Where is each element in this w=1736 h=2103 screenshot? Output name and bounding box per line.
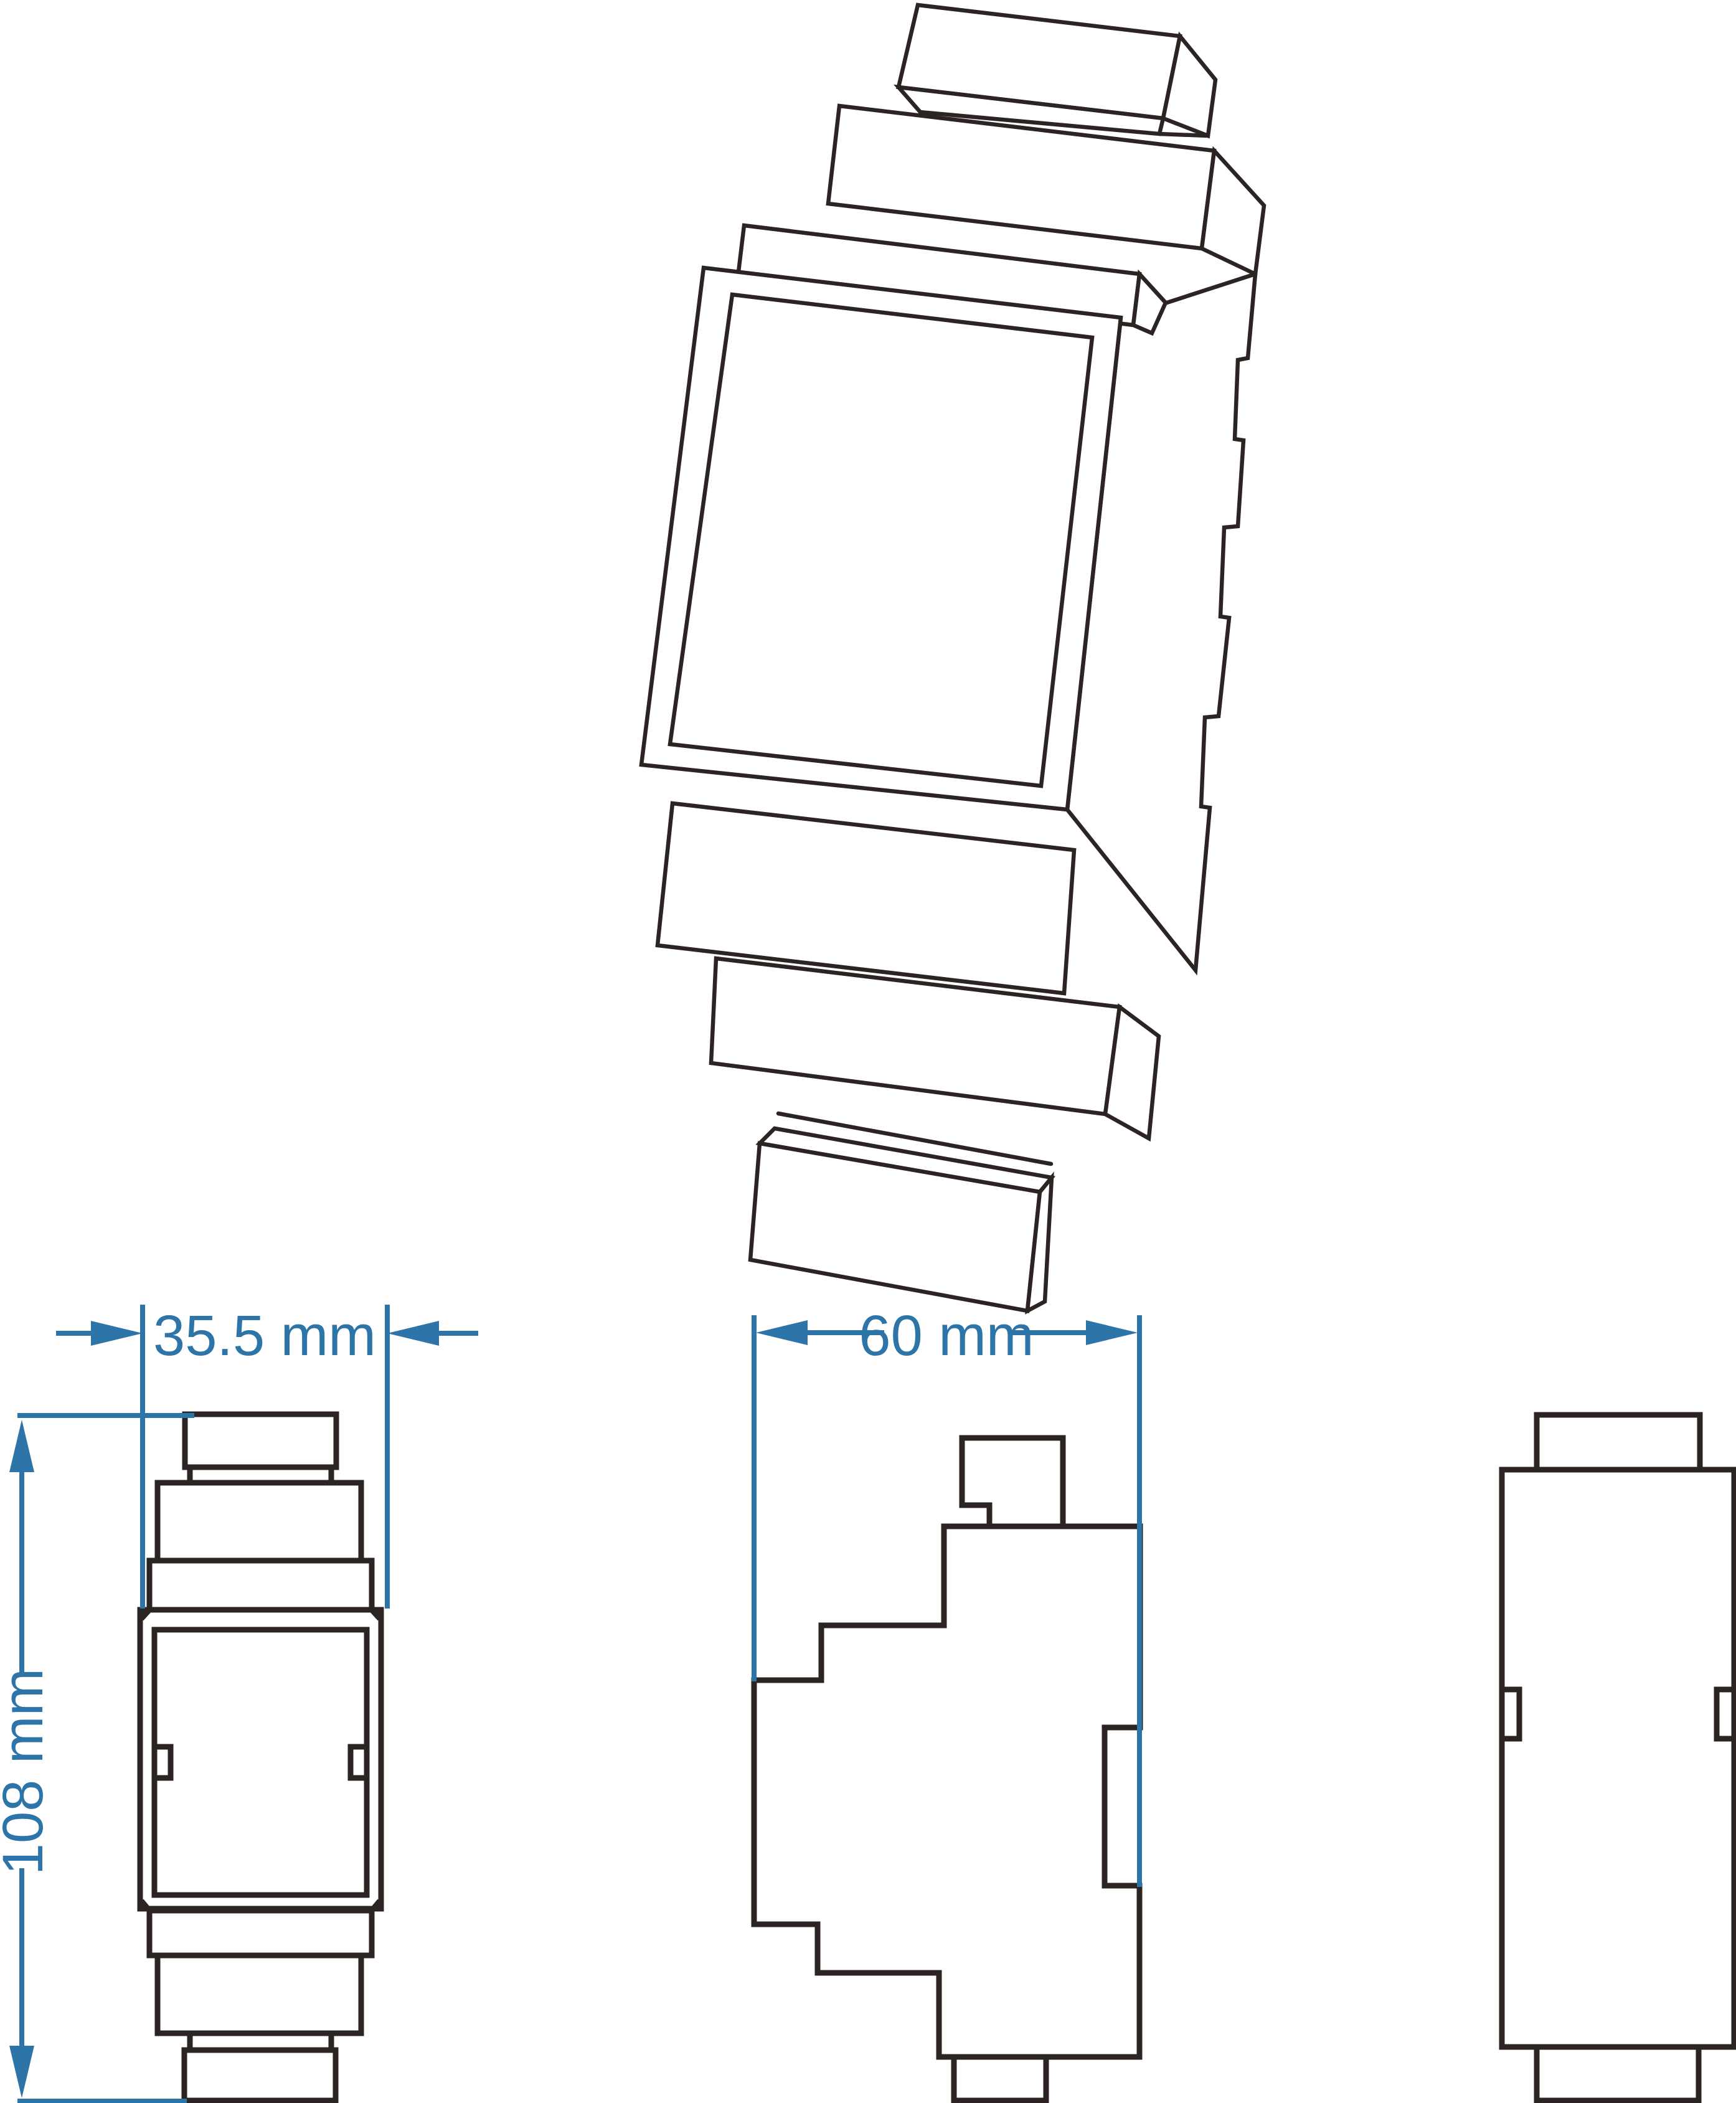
rear-top-clip bbox=[1537, 1415, 1700, 1470]
side-profile bbox=[754, 1526, 1140, 2057]
front-bottom-terminal bbox=[158, 1955, 361, 2033]
rear-bottom-clip bbox=[1537, 2047, 1699, 2101]
side-bottom-clip bbox=[954, 2057, 1046, 2101]
front-right-latch bbox=[351, 1747, 367, 1778]
front-view bbox=[140, 1414, 381, 2101]
technical-drawing-page: 35.5 mm 60 mm 108 mm bbox=[0, 0, 1736, 2103]
iso-top-box-bottom-edge bbox=[1159, 134, 1208, 136]
front-top-collar bbox=[149, 1561, 372, 1610]
arrowhead-left-icon bbox=[387, 1321, 439, 1346]
rear-left-latch bbox=[1502, 1689, 1519, 1739]
front-label-window bbox=[154, 1630, 367, 1895]
front-bottom-collar bbox=[149, 1911, 372, 1955]
rear-body bbox=[1502, 1470, 1734, 2047]
rear-view bbox=[1502, 1415, 1734, 2101]
front-width-dimension-label: 35.5 mm bbox=[153, 1304, 376, 1368]
front-bottom-clip bbox=[184, 2050, 336, 2101]
isometric-view bbox=[641, 5, 1264, 1311]
arrowhead-down-icon bbox=[9, 2046, 34, 2098]
front-top-clip bbox=[185, 1414, 336, 1467]
arrowhead-left-icon bbox=[756, 1320, 808, 1345]
arrowhead-up-icon bbox=[9, 1420, 34, 1472]
arrowhead-right-icon bbox=[91, 1321, 143, 1346]
front-height-dimension-label: 108 mm bbox=[0, 1668, 55, 1875]
side-depth-dimension-label: 60 mm bbox=[859, 1304, 1034, 1368]
iso-label-window bbox=[670, 295, 1092, 786]
side-view bbox=[754, 1438, 1140, 2101]
arrowhead-right-icon bbox=[1086, 1320, 1138, 1345]
front-left-latch bbox=[154, 1747, 171, 1778]
side-top-clip bbox=[962, 1438, 1063, 1526]
iso-terminal-deck-side bbox=[1202, 151, 1264, 274]
rear-right-latch bbox=[1717, 1689, 1734, 1739]
front-top-terminal bbox=[158, 1483, 361, 1561]
